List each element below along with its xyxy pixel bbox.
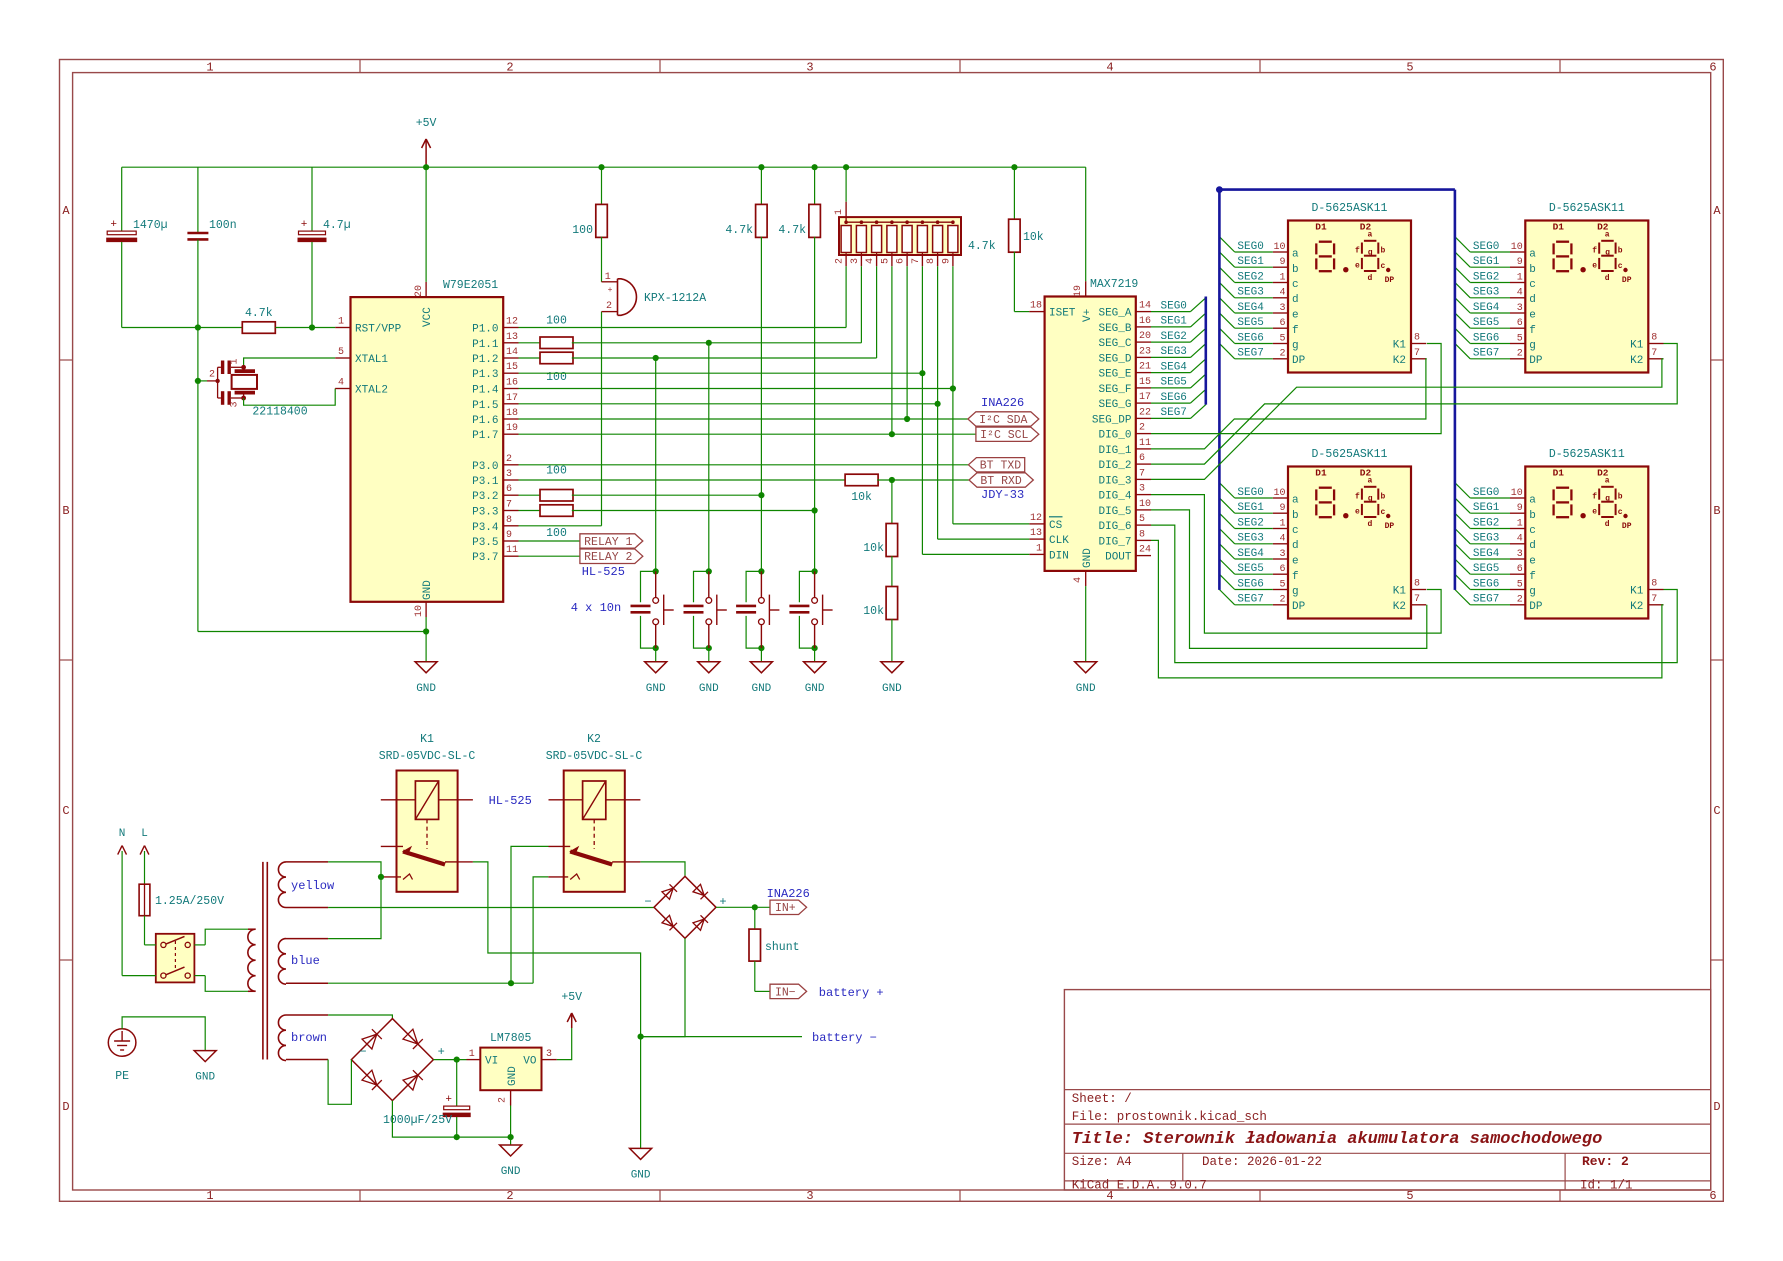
svg-text:2: 2 <box>506 1189 513 1203</box>
svg-text:8: 8 <box>1651 333 1657 344</box>
svg-text:DP: DP <box>1385 522 1395 531</box>
svg-text:12: 12 <box>1030 513 1042 524</box>
svg-text:e: e <box>1592 262 1597 271</box>
svg-text:4: 4 <box>338 378 344 389</box>
svg-text:22: 22 <box>1139 407 1151 418</box>
svg-text:GND: GND <box>751 683 771 695</box>
svg-text:6: 6 <box>1709 1189 1716 1203</box>
svg-text:Rev: 2: Rev: 2 <box>1582 1154 1629 1169</box>
svg-text:9: 9 <box>1517 257 1523 268</box>
svg-text:3: 3 <box>1279 303 1285 314</box>
svg-text:BT TXD: BT TXD <box>980 460 1022 473</box>
svg-text:DIG_6: DIG_6 <box>1098 521 1131 533</box>
svg-text:+: + <box>438 1045 445 1059</box>
svg-text:D1: D1 <box>1553 468 1565 479</box>
svg-text:8: 8 <box>926 258 937 264</box>
svg-text:Id: 1/1: Id: 1/1 <box>1580 1178 1633 1192</box>
svg-text:3: 3 <box>230 401 241 407</box>
svg-text:2: 2 <box>1517 595 1523 606</box>
svg-text:3: 3 <box>1517 303 1523 314</box>
svg-text:17: 17 <box>1139 392 1151 403</box>
svg-text:B: B <box>1713 504 1720 518</box>
svg-text:VI: VI <box>485 1056 498 1068</box>
svg-text:5: 5 <box>1517 579 1523 590</box>
svg-text:K1: K1 <box>1393 586 1407 598</box>
svg-text:19: 19 <box>1073 285 1084 297</box>
svg-text:9: 9 <box>1279 503 1285 514</box>
svg-text:10: 10 <box>1511 242 1523 253</box>
svg-text:3: 3 <box>1517 549 1523 560</box>
svg-text:D: D <box>62 1100 69 1114</box>
svg-text:GND: GND <box>507 1066 519 1086</box>
svg-text:5: 5 <box>1279 333 1285 344</box>
svg-text:12: 12 <box>506 317 518 328</box>
svg-text:7: 7 <box>1414 594 1420 605</box>
svg-text:3: 3 <box>1279 549 1285 560</box>
svg-text:DP: DP <box>1292 355 1306 367</box>
svg-text:f: f <box>1355 247 1360 256</box>
svg-text:GND: GND <box>631 1169 651 1181</box>
svg-text:a: a <box>1367 231 1372 240</box>
svg-text:SEG2: SEG2 <box>1473 271 1499 283</box>
svg-text:18: 18 <box>506 408 518 419</box>
svg-text:SEG3: SEG3 <box>1161 346 1187 358</box>
svg-text:2: 2 <box>1139 423 1145 434</box>
svg-text:14: 14 <box>1139 301 1151 312</box>
svg-text:e: e <box>1592 508 1597 517</box>
svg-text:P1.2: P1.2 <box>472 354 498 366</box>
svg-text:f: f <box>1355 493 1360 502</box>
svg-text:K1: K1 <box>420 733 434 746</box>
svg-text:I²C SDA: I²C SDA <box>979 414 1027 427</box>
svg-text:VO: VO <box>523 1056 537 1068</box>
svg-text:D-5625ASK11: D-5625ASK11 <box>1312 448 1388 461</box>
svg-text:10k: 10k <box>851 491 872 504</box>
svg-text:9: 9 <box>1279 257 1285 268</box>
svg-text:4 x 10n: 4 x 10n <box>571 601 621 615</box>
svg-text:File: prostownik.kicad_sch: File: prostownik.kicad_sch <box>1072 1110 1267 1124</box>
svg-text:INA226: INA226 <box>981 396 1024 410</box>
svg-text:d: d <box>1367 274 1372 283</box>
svg-text:SEG_A: SEG_A <box>1098 308 1131 320</box>
svg-text:+: + <box>301 219 308 231</box>
svg-text:+: + <box>608 286 613 295</box>
svg-text:P1.7: P1.7 <box>472 430 498 442</box>
svg-text:4.7k: 4.7k <box>968 240 996 253</box>
svg-text:SEG5: SEG5 <box>1473 317 1499 329</box>
svg-text:4.7k: 4.7k <box>725 224 753 237</box>
svg-text:6: 6 <box>506 484 512 495</box>
svg-text:SEG5: SEG5 <box>1237 563 1263 575</box>
svg-text:4: 4 <box>1279 534 1285 545</box>
svg-text:+5V: +5V <box>561 991 582 1004</box>
svg-text:g: g <box>1605 249 1610 258</box>
svg-text:17: 17 <box>506 393 518 404</box>
svg-text:15: 15 <box>506 362 518 373</box>
svg-text:C: C <box>1713 804 1720 818</box>
svg-text:5: 5 <box>1406 61 1413 75</box>
svg-text:4.7µ: 4.7µ <box>323 219 351 232</box>
svg-text:2: 2 <box>606 301 612 312</box>
svg-text:B: B <box>62 504 69 518</box>
svg-text:CS: CS <box>1049 520 1063 532</box>
svg-text:2: 2 <box>506 454 512 465</box>
svg-text:P1.6: P1.6 <box>472 415 498 427</box>
svg-text:a: a <box>1292 495 1299 507</box>
svg-text:1: 1 <box>206 61 213 75</box>
svg-text:GND: GND <box>646 683 666 695</box>
svg-text:4: 4 <box>865 258 876 264</box>
svg-text:c: c <box>1618 508 1623 517</box>
svg-text:1.25A/250V: 1.25A/250V <box>155 895 224 908</box>
svg-text:a: a <box>1605 231 1610 240</box>
svg-text:a: a <box>1605 477 1610 486</box>
svg-text:C: C <box>62 804 69 818</box>
svg-text:SEG0: SEG0 <box>1473 487 1499 499</box>
svg-text:10: 10 <box>1273 488 1285 499</box>
svg-text:XTAL1: XTAL1 <box>355 354 388 366</box>
svg-text:P3.3: P3.3 <box>472 507 498 519</box>
svg-text:e: e <box>1355 508 1360 517</box>
svg-text:b: b <box>1529 264 1536 276</box>
svg-text:Date: 2026-01-22: Date: 2026-01-22 <box>1202 1155 1322 1169</box>
svg-text:SEG1: SEG1 <box>1161 316 1188 328</box>
svg-text:8: 8 <box>1414 333 1420 344</box>
svg-text:5: 5 <box>338 347 344 358</box>
svg-text:P3.5: P3.5 <box>472 537 498 549</box>
svg-text:RELAY 2: RELAY 2 <box>584 551 632 564</box>
svg-text:g: g <box>1368 495 1373 504</box>
svg-text:7: 7 <box>506 500 512 511</box>
svg-text:N: N <box>119 828 126 840</box>
svg-text:2: 2 <box>498 1097 509 1103</box>
svg-text:I²C SCL: I²C SCL <box>980 429 1028 442</box>
svg-text:D1: D1 <box>1315 222 1327 233</box>
svg-text:7: 7 <box>1414 348 1420 359</box>
svg-text:P3.2: P3.2 <box>472 491 498 503</box>
svg-text:SEG0: SEG0 <box>1237 241 1263 253</box>
svg-text:5: 5 <box>1139 514 1145 525</box>
svg-text:MAX7219: MAX7219 <box>1090 278 1138 291</box>
svg-text:14: 14 <box>506 347 518 358</box>
svg-text:blue: blue <box>291 954 320 968</box>
svg-text:8: 8 <box>1651 579 1657 590</box>
svg-text:SEG5: SEG5 <box>1473 563 1499 575</box>
svg-text:SRD-05VDC-SL-C: SRD-05VDC-SL-C <box>546 750 643 763</box>
svg-text:SEG3: SEG3 <box>1473 533 1499 545</box>
svg-text:DP: DP <box>1529 601 1543 613</box>
svg-text:1: 1 <box>834 209 845 215</box>
svg-text:3: 3 <box>806 1189 813 1203</box>
svg-text:6: 6 <box>1279 318 1285 329</box>
svg-text:d: d <box>1292 294 1299 306</box>
svg-text:DIG_3: DIG_3 <box>1098 475 1131 487</box>
svg-text:GND: GND <box>699 683 719 695</box>
svg-text:10k: 10k <box>863 605 884 618</box>
svg-text:1470µ: 1470µ <box>133 219 168 232</box>
svg-text:K1: K1 <box>1630 340 1644 352</box>
svg-text:8: 8 <box>1139 529 1145 540</box>
svg-text:2: 2 <box>1517 349 1523 360</box>
svg-text:6: 6 <box>896 258 907 264</box>
svg-text:f: f <box>1292 325 1299 337</box>
svg-text:SEG_F: SEG_F <box>1098 384 1131 396</box>
svg-text:f: f <box>1592 493 1597 502</box>
svg-text:e: e <box>1355 262 1360 271</box>
svg-text:K2: K2 <box>1630 355 1643 367</box>
svg-text:15: 15 <box>1139 377 1151 388</box>
svg-text:K2: K2 <box>1630 601 1643 613</box>
svg-text:SEG1: SEG1 <box>1237 502 1264 514</box>
svg-text:W79E2051: W79E2051 <box>443 279 498 292</box>
svg-text:10: 10 <box>1139 499 1151 510</box>
svg-text:d: d <box>1529 294 1536 306</box>
svg-text:P3.4: P3.4 <box>472 522 499 534</box>
svg-text:SEG1: SEG1 <box>1473 502 1500 514</box>
svg-text:8: 8 <box>1414 579 1420 590</box>
svg-text:3: 3 <box>1139 484 1145 495</box>
svg-text:16: 16 <box>506 378 518 389</box>
svg-text:e: e <box>1529 310 1536 322</box>
svg-text:b: b <box>1529 510 1536 522</box>
svg-text:24: 24 <box>1139 545 1151 556</box>
svg-text:SEG4: SEG4 <box>1473 548 1500 560</box>
svg-text:2: 2 <box>506 61 513 75</box>
svg-text:DP: DP <box>1292 601 1306 613</box>
svg-text:9: 9 <box>506 530 512 541</box>
svg-text:SEG2: SEG2 <box>1237 517 1263 529</box>
svg-text:GND: GND <box>416 683 436 695</box>
svg-text:4: 4 <box>1279 288 1285 299</box>
svg-text:4: 4 <box>1073 577 1084 583</box>
svg-text:2: 2 <box>209 370 215 381</box>
svg-text:SEG3: SEG3 <box>1473 287 1499 299</box>
svg-text:1: 1 <box>1517 518 1523 529</box>
svg-text:21: 21 <box>1139 362 1151 373</box>
svg-text:d: d <box>1292 540 1299 552</box>
svg-text:20: 20 <box>414 285 425 297</box>
svg-text:f: f <box>1292 571 1299 583</box>
svg-text:5: 5 <box>1279 579 1285 590</box>
svg-text:11: 11 <box>1139 438 1151 449</box>
svg-text:SEG_DP: SEG_DP <box>1092 414 1132 426</box>
svg-text:4: 4 <box>1106 61 1113 75</box>
svg-text:VCC: VCC <box>422 307 434 327</box>
svg-text:P1.0: P1.0 <box>472 324 498 336</box>
svg-text:D1: D1 <box>1553 222 1565 233</box>
svg-text:DIG_2: DIG_2 <box>1098 460 1131 472</box>
svg-text:yellow: yellow <box>291 879 335 893</box>
svg-text:SEG7: SEG7 <box>1161 407 1187 419</box>
svg-text:1: 1 <box>230 358 241 364</box>
svg-text:100n: 100n <box>209 219 237 232</box>
svg-text:+: + <box>445 1094 452 1106</box>
svg-text:PE: PE <box>115 1070 129 1083</box>
svg-text:SEG6: SEG6 <box>1473 332 1499 344</box>
svg-text:10k: 10k <box>863 542 884 555</box>
svg-text:HL-525: HL-525 <box>582 565 625 579</box>
svg-text:SEG_C: SEG_C <box>1098 338 1131 350</box>
svg-text:SEG_D: SEG_D <box>1098 353 1131 365</box>
svg-text:g: g <box>1605 495 1610 504</box>
svg-text:6: 6 <box>1279 564 1285 575</box>
svg-text:100: 100 <box>572 224 593 237</box>
svg-text:5: 5 <box>1517 333 1523 344</box>
svg-text:1: 1 <box>1279 272 1285 283</box>
svg-text:c: c <box>1292 525 1299 537</box>
svg-text:100: 100 <box>546 465 567 478</box>
svg-text:DP: DP <box>1622 276 1632 285</box>
svg-text:18: 18 <box>1030 301 1042 312</box>
svg-text:DIG_7: DIG_7 <box>1098 536 1131 548</box>
svg-text:BT RXD: BT RXD <box>980 475 1022 488</box>
svg-text:+5V: +5V <box>416 117 437 130</box>
svg-text:1000µF/25V: 1000µF/25V <box>383 1114 452 1127</box>
svg-text:6: 6 <box>1517 564 1523 575</box>
svg-text:10: 10 <box>1273 242 1285 253</box>
svg-text:GND: GND <box>1082 548 1094 568</box>
svg-text:P3.0: P3.0 <box>472 461 498 473</box>
svg-text:c: c <box>1292 279 1299 291</box>
svg-text:SEG0: SEG0 <box>1161 300 1187 312</box>
svg-text:3: 3 <box>546 1049 552 1060</box>
svg-text:b: b <box>1618 493 1623 502</box>
svg-text:KiCad E.D.A. 9.0.7: KiCad E.D.A. 9.0.7 <box>1072 1178 1207 1192</box>
svg-text:K1: K1 <box>1393 340 1407 352</box>
svg-text:SEG4: SEG4 <box>1473 302 1500 314</box>
svg-text:P1.1: P1.1 <box>472 339 499 351</box>
svg-text:SEG7: SEG7 <box>1473 594 1499 606</box>
svg-text:SEG2: SEG2 <box>1473 517 1499 529</box>
svg-text:DIG_0: DIG_0 <box>1098 430 1131 442</box>
svg-text:7: 7 <box>1651 348 1657 359</box>
svg-text:RST/VPP: RST/VPP <box>355 324 402 336</box>
svg-text:e: e <box>1292 310 1299 322</box>
svg-text:KPX-1212A: KPX-1212A <box>644 292 706 305</box>
svg-text:d: d <box>1605 274 1610 283</box>
svg-text:1: 1 <box>206 1189 213 1203</box>
svg-text:100: 100 <box>546 527 567 540</box>
svg-text:D-5625ASK11: D-5625ASK11 <box>1312 202 1388 215</box>
svg-text:P1.3: P1.3 <box>472 369 498 381</box>
svg-text:SEG7: SEG7 <box>1473 348 1499 360</box>
svg-text:K2: K2 <box>587 733 601 746</box>
svg-text:100: 100 <box>546 315 567 328</box>
svg-text:2: 2 <box>1279 595 1285 606</box>
svg-text:D1: D1 <box>1315 468 1327 479</box>
svg-text:P1.5: P1.5 <box>472 400 498 412</box>
svg-text:K2: K2 <box>1393 601 1406 613</box>
svg-text:SEG1: SEG1 <box>1237 256 1264 268</box>
svg-text:SEG4: SEG4 <box>1237 548 1264 560</box>
svg-text:INA226: INA226 <box>767 887 810 901</box>
svg-text:DIG_4: DIG_4 <box>1098 491 1131 503</box>
svg-text:SEG1: SEG1 <box>1473 256 1500 268</box>
svg-text:LM7805: LM7805 <box>490 1032 532 1045</box>
svg-text:−: − <box>644 895 651 909</box>
svg-text:7: 7 <box>1651 594 1657 605</box>
svg-text:4.7k: 4.7k <box>778 224 806 237</box>
svg-text:b: b <box>1380 493 1385 502</box>
svg-text:a: a <box>1529 495 1536 507</box>
svg-text:battery −: battery − <box>812 1031 877 1045</box>
svg-text:shunt: shunt <box>765 941 800 954</box>
svg-text:10: 10 <box>1511 488 1523 499</box>
svg-text:ISET: ISET <box>1049 308 1076 320</box>
svg-text:Title: Sterownik ładowania aku: Title: Sterownik ładowania akumulatora s… <box>1072 1130 1603 1149</box>
svg-text:g: g <box>1529 586 1536 598</box>
svg-text:XTAL2: XTAL2 <box>355 385 388 397</box>
svg-text:Sheet: /: Sheet: / <box>1072 1092 1132 1106</box>
svg-text:a: a <box>1529 249 1536 261</box>
svg-text:a: a <box>1292 249 1299 261</box>
svg-text:23: 23 <box>1139 346 1151 357</box>
svg-text:f: f <box>1529 571 1536 583</box>
svg-text:DIG_5: DIG_5 <box>1098 506 1131 518</box>
svg-text:SEG0: SEG0 <box>1473 241 1499 253</box>
svg-text:16: 16 <box>1139 316 1151 327</box>
svg-text:d: d <box>1605 520 1610 529</box>
svg-text:4: 4 <box>1517 534 1523 545</box>
svg-text:SRD-05VDC-SL-C: SRD-05VDC-SL-C <box>379 750 476 763</box>
svg-text:6: 6 <box>1709 61 1716 75</box>
svg-text:SEG2: SEG2 <box>1237 271 1263 283</box>
svg-text:10: 10 <box>414 605 425 617</box>
svg-text:K1: K1 <box>1630 586 1644 598</box>
svg-text:b: b <box>1618 247 1623 256</box>
svg-text:RELAY 1: RELAY 1 <box>584 536 632 549</box>
svg-text:b: b <box>1292 510 1299 522</box>
svg-text:SEG6: SEG6 <box>1161 392 1187 404</box>
svg-text:battery +: battery + <box>819 986 884 1000</box>
svg-text:DP: DP <box>1529 355 1543 367</box>
svg-text:SEG_B: SEG_B <box>1098 323 1131 335</box>
svg-text:GND: GND <box>882 683 902 695</box>
svg-text:SEG0: SEG0 <box>1237 487 1263 499</box>
svg-text:SEG3: SEG3 <box>1237 533 1263 545</box>
svg-text:1: 1 <box>1279 518 1285 529</box>
svg-text:22118400: 22118400 <box>252 406 307 419</box>
svg-text:6: 6 <box>1139 453 1145 464</box>
svg-text:K2: K2 <box>1393 355 1406 367</box>
svg-text:1: 1 <box>1517 272 1523 283</box>
svg-text:GND: GND <box>195 1072 215 1084</box>
svg-text:1: 1 <box>1036 543 1042 554</box>
svg-text:L: L <box>141 828 148 840</box>
svg-text:SEG6: SEG6 <box>1473 578 1499 590</box>
svg-text:d: d <box>1367 520 1372 529</box>
svg-text:SEG_G: SEG_G <box>1098 399 1131 411</box>
svg-text:DP: DP <box>1385 276 1395 285</box>
svg-text:2: 2 <box>1279 349 1285 360</box>
svg-text:g: g <box>1292 586 1299 598</box>
svg-text:g: g <box>1529 340 1536 352</box>
svg-text:b: b <box>1292 264 1299 276</box>
svg-text:g: g <box>1292 340 1299 352</box>
svg-text:GND: GND <box>422 580 434 600</box>
svg-text:6: 6 <box>1517 318 1523 329</box>
svg-text:IN+: IN+ <box>775 902 796 915</box>
svg-text:SEG6: SEG6 <box>1237 578 1263 590</box>
svg-text:9: 9 <box>941 258 952 264</box>
svg-text:IN−: IN− <box>775 986 796 999</box>
svg-text:A: A <box>62 204 70 218</box>
svg-text:A: A <box>1713 204 1721 218</box>
svg-text:3: 3 <box>506 469 512 480</box>
svg-text:5: 5 <box>1406 1189 1413 1203</box>
svg-text:7: 7 <box>911 258 922 264</box>
svg-text:8: 8 <box>506 515 512 526</box>
